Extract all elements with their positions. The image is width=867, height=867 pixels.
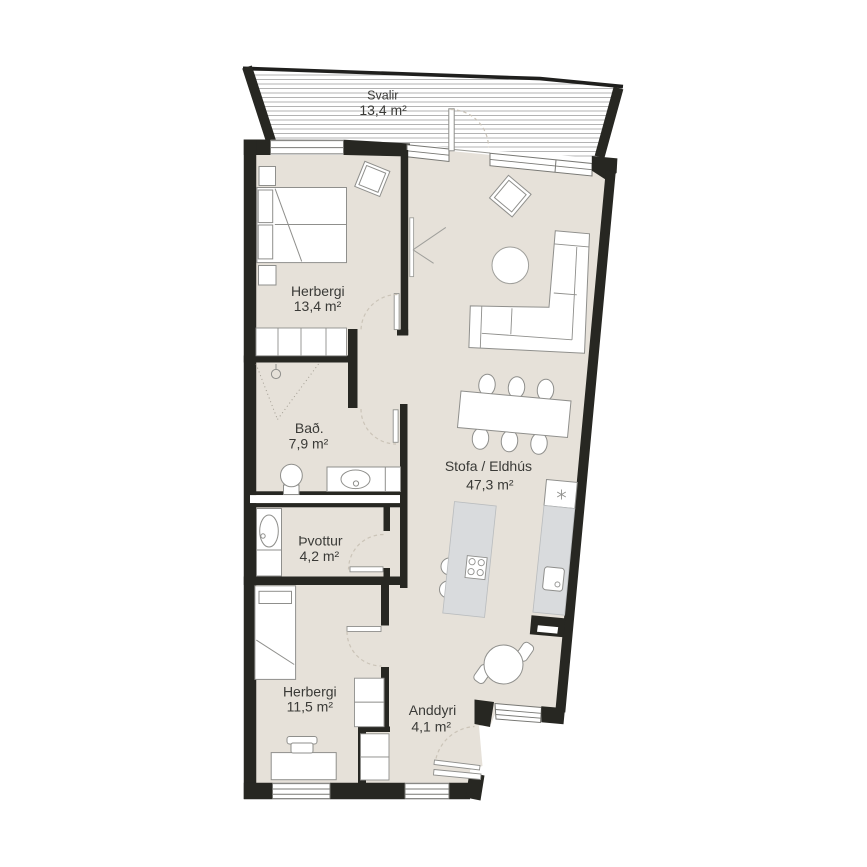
svg-text:Þvottur: Þvottur xyxy=(298,533,343,549)
svg-text:7,9 m²: 7,9 m² xyxy=(289,436,329,452)
svg-text:13,4 m²: 13,4 m² xyxy=(294,298,342,314)
svg-text:4,1 m²: 4,1 m² xyxy=(411,719,451,735)
svg-text:47,3 m²: 47,3 m² xyxy=(466,477,514,493)
svg-text:Bað.: Bað. xyxy=(295,420,324,436)
svg-text:Stofa / Eldhús: Stofa / Eldhús xyxy=(445,458,532,474)
svg-text:11,5 m²: 11,5 m² xyxy=(287,699,334,715)
svg-text:Svalir: Svalir xyxy=(367,89,398,103)
svg-text:4,2 m²: 4,2 m² xyxy=(300,548,340,564)
svg-text:Herbergi: Herbergi xyxy=(291,283,345,299)
svg-text:Herbergi: Herbergi xyxy=(283,684,337,700)
svg-text:Anddyri: Anddyri xyxy=(409,702,456,718)
svg-text:13,4 m²: 13,4 m² xyxy=(359,102,407,118)
